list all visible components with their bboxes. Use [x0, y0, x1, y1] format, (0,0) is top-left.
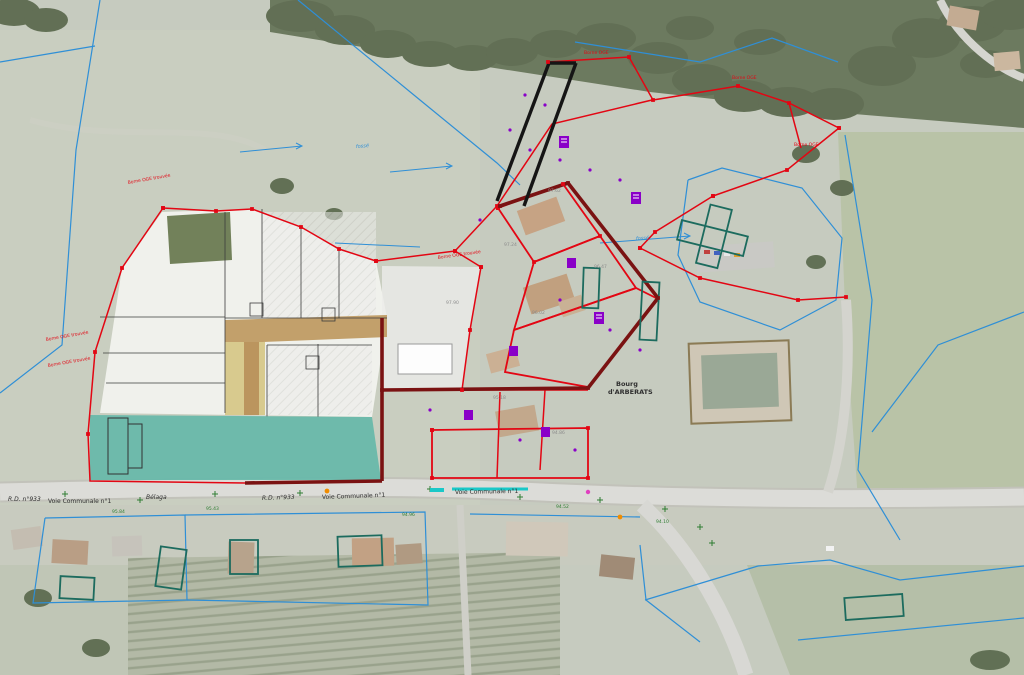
survey-point-marker — [586, 386, 590, 390]
existing-houses-shape — [11, 526, 43, 550]
tree-canopy-shape — [628, 42, 688, 74]
tree-canopy-shape — [530, 30, 582, 58]
survey-point-marker — [93, 350, 97, 354]
utility-point-dots-shape — [523, 93, 526, 96]
survey-point-marker — [651, 98, 655, 102]
label-road-elevation: 95.43 — [206, 506, 219, 512]
utility-point-dots-shape — [588, 168, 591, 171]
utility-point-dots-shape — [558, 298, 561, 301]
survey-point-marker — [785, 168, 789, 172]
label-bourg: Bourg — [616, 380, 638, 388]
survey-point-marker — [653, 230, 657, 234]
utility-point-dots-shape — [478, 218, 481, 221]
utility-point-dots-shape — [528, 148, 531, 151]
survey-point-marker — [453, 249, 457, 253]
label-road-elevation: 95.84 — [112, 509, 125, 515]
survey-map-canvas: Bourg d'ARBERATS R.D. n°933 R.D. n°933 V… — [0, 0, 1024, 675]
existing-houses-shape — [112, 535, 143, 556]
existing-houses-shape — [599, 554, 635, 579]
survey-point-marker — [479, 265, 483, 269]
survey-point-marker — [787, 101, 791, 105]
label-elevation: 97.24 — [504, 242, 517, 248]
hatched-lots-top — [262, 212, 376, 318]
label-road-elevation: 94.96 — [402, 512, 415, 518]
label-road-rd933: R.D. n°933 — [262, 494, 295, 502]
survey-point-marker — [468, 328, 472, 332]
survey-point-marker — [656, 296, 660, 300]
existing-houses-shape — [506, 521, 569, 556]
survey-point-marker — [796, 298, 800, 302]
survey-point-marker — [698, 276, 702, 280]
utility-point-dots-shape — [543, 103, 546, 106]
survey-point-marker — [120, 266, 124, 270]
survey-point-marker — [566, 181, 570, 185]
access-road-vertical — [244, 342, 259, 415]
utility-point-dots-shape — [618, 178, 621, 181]
olive-lot — [167, 212, 232, 264]
survey-point-marker — [374, 259, 378, 263]
survey-point-marker — [638, 246, 642, 250]
label-stream: fossé — [636, 234, 649, 242]
survey-point-marker — [86, 432, 90, 436]
utility-point-dots-shape — [508, 128, 511, 131]
label-elevation: 96.47 — [594, 264, 607, 270]
survey-point-marker — [430, 476, 434, 480]
utility-cabinet-markers-shape — [509, 346, 518, 356]
survey-point-marker — [711, 194, 715, 198]
existing-houses-shape — [227, 542, 254, 575]
tree-canopy-shape — [666, 16, 714, 40]
tree-canopy-shape — [970, 650, 1010, 670]
survey-point-marker — [598, 234, 602, 238]
tree-canopy-shape — [82, 639, 110, 657]
label-road-rd933: R.D. n°933 — [8, 496, 41, 503]
survey-point-marker — [214, 209, 218, 213]
orange-mark — [325, 489, 330, 494]
utility-point-dots-shape — [518, 438, 521, 441]
hatched-lots-bottom — [267, 345, 372, 415]
label-stream: fossé — [356, 142, 370, 150]
vineyard-field — [128, 552, 560, 675]
survey-point-marker — [736, 84, 740, 88]
white-building — [398, 344, 452, 374]
survey-point-marker — [844, 295, 848, 299]
label-borne: Borne OGE — [794, 142, 819, 148]
survey-point-marker — [561, 182, 565, 186]
subdivision-plan-shape — [259, 342, 265, 415]
existing-houses-shape — [714, 251, 720, 255]
utility-point-dots-shape — [558, 158, 561, 161]
tree-canopy-shape — [830, 180, 854, 196]
label-road-elevation: 94.10 — [656, 519, 669, 525]
khaki-verge — [225, 342, 244, 415]
label-road-elevation: 94.52 — [556, 504, 569, 510]
utility-cabinet-markers-shape — [464, 410, 473, 420]
utility-point-dots-shape — [428, 408, 431, 411]
label-borne: Borne OGE — [584, 50, 609, 56]
survey-point-marker — [532, 260, 536, 264]
survey-point-marker — [430, 428, 434, 432]
sports-court — [701, 353, 779, 410]
survey-point-marker — [380, 388, 384, 392]
label-elevation: 94.86 — [552, 430, 565, 436]
map-svg: Bourg d'ARBERATS R.D. n°933 R.D. n°933 V… — [0, 0, 1024, 675]
greenspace-teal — [90, 415, 381, 480]
label-elevation: 97.90 — [446, 300, 459, 306]
label-elevation: 95.18 — [493, 395, 506, 401]
survey-point-marker — [337, 247, 341, 251]
survey-point-marker — [586, 426, 590, 430]
survey-point-marker — [498, 204, 502, 208]
survey-point-marker — [837, 126, 841, 130]
tree-canopy-shape — [486, 38, 538, 66]
car — [826, 546, 834, 551]
utility-point-dots-shape — [573, 448, 576, 451]
label-borne: Borne OGE — [732, 75, 757, 81]
orange-mark — [618, 515, 623, 520]
tree-canopy-shape — [24, 8, 68, 32]
existing-houses-shape — [993, 51, 1020, 71]
existing-houses-shape — [51, 539, 88, 565]
survey-point-marker — [250, 207, 254, 211]
utility-cabinet-markers-shape — [541, 427, 550, 437]
utility-cabinet-markers-shape — [567, 258, 576, 268]
existing-houses-shape — [352, 538, 394, 567]
project-boundary-shape — [245, 481, 382, 483]
tree-canopy-shape — [24, 589, 52, 607]
survey-point-marker — [299, 225, 303, 229]
tree-canopy-shape — [576, 23, 636, 53]
utility-point-dots-shape — [638, 348, 641, 351]
label-road-vc1: Voie Communale n°1 — [48, 498, 111, 505]
label-lieu-belaga: Bélaga — [146, 494, 167, 501]
label-bourg: d'ARBERATS — [608, 388, 653, 396]
survey-point-marker — [546, 60, 550, 64]
label-elevation: 97.62 — [548, 188, 561, 194]
survey-point-marker — [161, 206, 165, 210]
existing-houses-shape — [704, 250, 710, 254]
existing-houses-shape — [395, 543, 422, 565]
survey-point-marker — [627, 55, 631, 59]
tree-canopy-shape — [806, 255, 826, 269]
utility-point-dots-shape — [608, 328, 611, 331]
magenta-mark — [586, 490, 590, 494]
label-road-vc1: Voie Communale n°1 — [455, 488, 519, 496]
survey-point-marker — [460, 388, 464, 392]
label-elevation: 96.02 — [532, 310, 545, 316]
cyan-survey-segment — [430, 488, 444, 492]
tree-canopy-shape — [270, 178, 294, 194]
survey-point-marker — [586, 476, 590, 480]
